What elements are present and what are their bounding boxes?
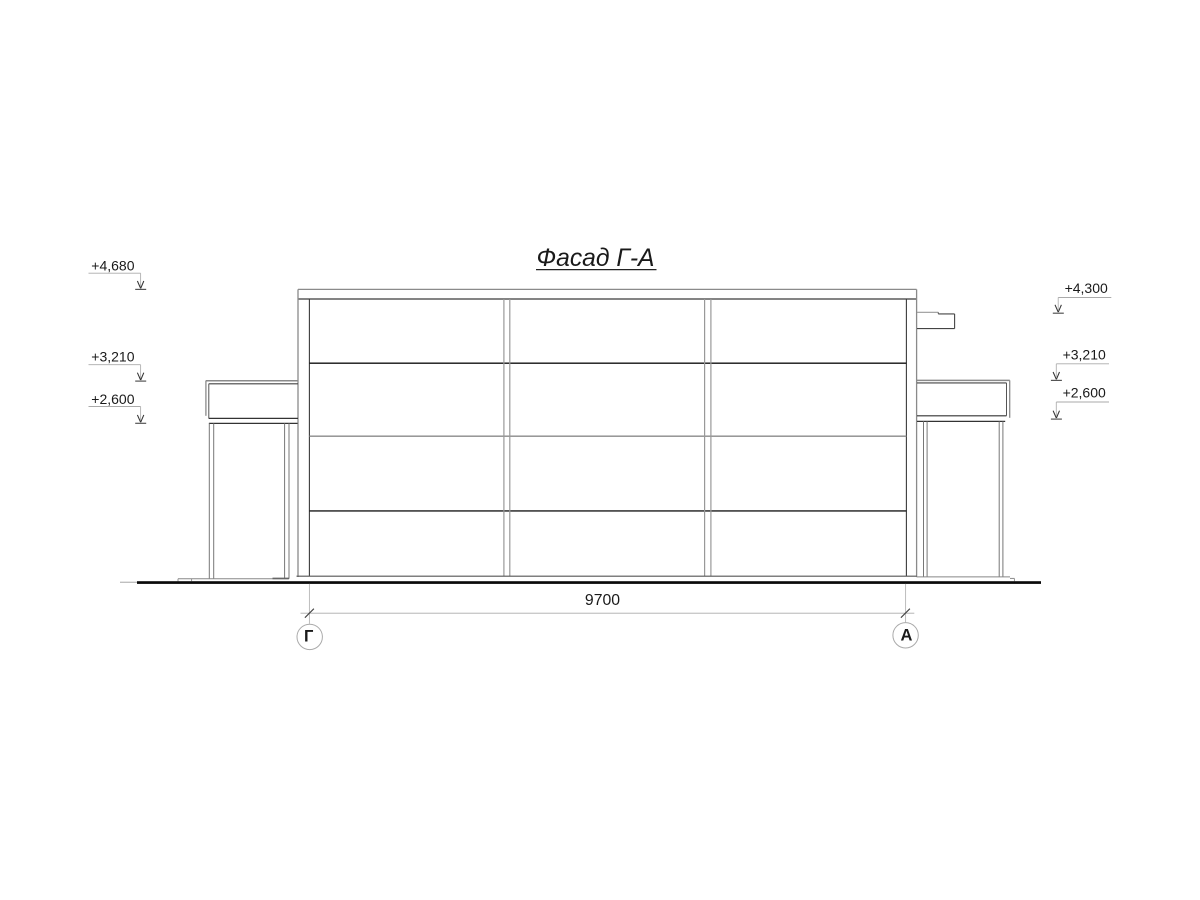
svg-text:+3,210: +3,210 (91, 349, 134, 365)
svg-text:+3,210: +3,210 (1063, 346, 1106, 362)
svg-text:А: А (900, 627, 912, 645)
svg-text:Г: Г (304, 627, 314, 645)
svg-text:+4,300: +4,300 (1065, 280, 1108, 296)
svg-text:Фасад Г-А: Фасад Г-А (536, 245, 654, 272)
svg-text:+2,600: +2,600 (91, 391, 134, 407)
svg-text:9700: 9700 (585, 592, 620, 609)
svg-text:+2,600: +2,600 (1063, 384, 1106, 400)
svg-text:+4,680: +4,680 (91, 257, 134, 273)
